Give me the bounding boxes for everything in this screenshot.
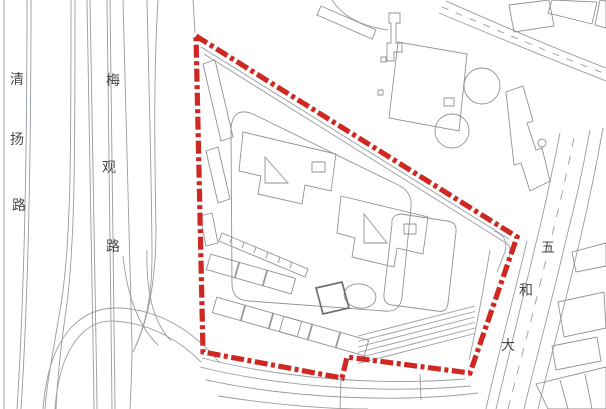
office-slab — [337, 196, 428, 267]
road-line — [87, 0, 94, 409]
road-label-char: 路 — [11, 199, 27, 215]
building-outline — [509, 0, 554, 32]
ramp-arc — [55, 321, 201, 409]
building-outline — [404, 224, 416, 234]
ramp-triangle — [364, 214, 387, 243]
ramp-line — [147, 250, 171, 341]
ramp-line — [123, 256, 158, 345]
road-label-char: 梅 — [105, 74, 121, 90]
residential-row — [206, 254, 295, 294]
road-label-char: 大 — [500, 339, 516, 355]
road-line — [206, 380, 478, 398]
road-centerline — [442, 7, 606, 74]
road-line — [193, 0, 195, 33]
building-outline — [203, 60, 233, 141]
road-line — [107, 0, 112, 409]
lane-line — [358, 317, 475, 347]
building-outline — [381, 57, 386, 62]
bold-building-outline — [316, 282, 349, 314]
road-line — [136, 0, 158, 345]
road-line — [494, 231, 506, 272]
building-outline — [206, 147, 230, 203]
road-line — [218, 396, 368, 409]
small-tank — [538, 139, 546, 147]
road-label-char: 清 — [9, 73, 25, 89]
storage-tank — [435, 114, 469, 148]
lane-line — [358, 323, 475, 353]
road-line — [439, 13, 606, 81]
building-outline — [548, 0, 597, 24]
road-label-char: 扬 — [9, 133, 25, 149]
road-label-char: 路 — [105, 240, 121, 256]
road-line — [110, 0, 115, 409]
building-outline — [585, 374, 592, 409]
lane-line — [358, 312, 475, 342]
building-outline — [552, 337, 601, 370]
road-line — [133, 0, 152, 352]
site-boundary-redline — [196, 36, 517, 378]
road-line — [340, 378, 341, 409]
road-line — [420, 374, 421, 400]
road-line — [524, 130, 590, 409]
road-line — [56, 0, 75, 409]
road-label-char: 五 — [540, 241, 556, 257]
site-plan-map: 清 扬 路 梅 观 路 五 和 大 — [0, 0, 606, 409]
site-road-curb — [231, 112, 411, 311]
building-outline — [342, 281, 378, 310]
building-outline — [444, 98, 454, 106]
office-slab — [239, 132, 336, 204]
building-outline — [387, 13, 402, 61]
building-outline — [572, 243, 606, 272]
road-line — [446, 1, 606, 68]
storage-tank — [464, 68, 500, 104]
building-outline — [378, 90, 383, 95]
road-line — [123, 0, 132, 409]
road-label-char: 和 — [518, 284, 534, 300]
ramp-triangle — [265, 157, 288, 183]
lane-line — [358, 328, 475, 358]
building-outline — [506, 86, 550, 191]
building-outline — [558, 292, 606, 337]
building-outline — [560, 380, 568, 409]
road-label-char: 观 — [101, 161, 117, 177]
road-line — [201, 47, 509, 239]
building-outline — [317, 6, 376, 39]
factory-outline — [389, 42, 467, 131]
building-outline — [312, 162, 325, 172]
